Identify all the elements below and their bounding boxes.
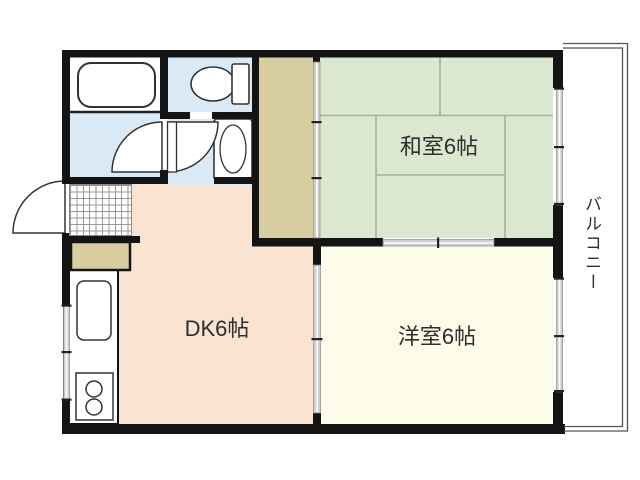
floor-plan: 和室6帖 洋室6帖 DK6帖 バルコニー — [0, 0, 640, 480]
western-room-label: 洋室6帖 — [358, 324, 516, 350]
wall-dk-door-stub-top — [313, 247, 321, 266]
wall-sanitary-vertical — [160, 57, 168, 115]
window-japanese-room — [554, 88, 564, 206]
wall-left-lower — [62, 400, 70, 424]
washbasin — [214, 119, 252, 180]
genkan-tile — [69, 184, 132, 236]
entrance-door-swing — [13, 181, 65, 233]
wall-washroom-bottom — [62, 177, 165, 184]
dining-kitchen-label: DK6帖 — [157, 316, 277, 342]
bathtub — [78, 63, 155, 107]
wall-bottom — [62, 424, 565, 434]
kitchen-counter — [64, 270, 118, 424]
kitchen-sink — [77, 281, 111, 340]
wall-right-upper — [553, 57, 563, 88]
shoe-cabinet — [71, 242, 130, 270]
sliding-door-japanese-western — [383, 238, 494, 249]
wall-toilet-bottom-right — [212, 112, 252, 119]
closet-floor — [259, 57, 313, 238]
japanese-room-label: 和室6帖 — [360, 134, 518, 160]
balcony-label: バルコニー — [581, 195, 601, 315]
wall-room-divider-right — [494, 238, 563, 247]
stove — [76, 373, 113, 420]
wall-left-upper — [62, 57, 70, 184]
wall-washbasin-stub — [214, 177, 252, 184]
wall-closet-bottom — [252, 238, 320, 247]
wall-dk-door-stub-bottom — [313, 413, 321, 424]
wall-right-lower — [553, 392, 563, 424]
window-western-room — [554, 278, 564, 393]
toilet — [191, 64, 249, 104]
floor-plan-drawing — [0, 0, 640, 480]
wall-genkan-bottom — [62, 236, 140, 243]
wall-closet-left — [252, 57, 259, 246]
wall-room-divider-left — [320, 238, 383, 247]
wall-left-mid — [62, 233, 70, 305]
wall-toilet-bottom-left — [160, 112, 190, 119]
wall-top — [62, 50, 563, 58]
